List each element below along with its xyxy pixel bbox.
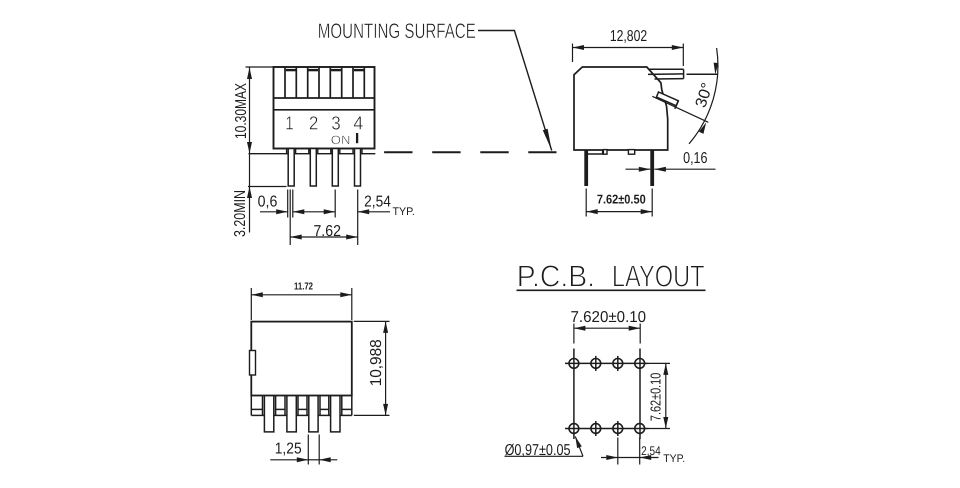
svg-text:MOUNTING SURFACE: MOUNTING SURFACE bbox=[318, 20, 476, 43]
svg-text:30°: 30° bbox=[693, 81, 717, 110]
svg-text:10,988: 10,988 bbox=[368, 339, 385, 386]
svg-text:0,16: 0,16 bbox=[683, 150, 708, 167]
svg-text:2,54: 2,54 bbox=[641, 444, 661, 458]
svg-text:1,25: 1,25 bbox=[275, 440, 302, 457]
svg-text:TYP.: TYP. bbox=[663, 453, 685, 465]
svg-text:11.72: 11.72 bbox=[294, 281, 313, 292]
svg-text:10.30MAX: 10.30MAX bbox=[233, 83, 250, 139]
svg-text:ON: ON bbox=[331, 133, 351, 147]
svg-text:TYP.: TYP. bbox=[393, 206, 415, 218]
svg-text:3: 3 bbox=[331, 114, 341, 135]
svg-text:1: 1 bbox=[285, 114, 294, 135]
svg-text:2,54: 2,54 bbox=[364, 194, 391, 211]
svg-text:7.620±0.10: 7.620±0.10 bbox=[571, 309, 647, 326]
svg-text:3.20MIN: 3.20MIN bbox=[232, 190, 249, 237]
svg-text:P.C.B.: P.C.B. bbox=[517, 260, 595, 294]
svg-text:0,6: 0,6 bbox=[258, 194, 278, 211]
svg-text:12,802: 12,802 bbox=[610, 28, 647, 45]
svg-text:7.62±0.10: 7.62±0.10 bbox=[648, 373, 664, 421]
svg-text:LAYOUT: LAYOUT bbox=[612, 260, 705, 294]
svg-text:7.62±0.50: 7.62±0.50 bbox=[597, 192, 646, 207]
svg-text:7.62: 7.62 bbox=[313, 223, 341, 240]
svg-text:2: 2 bbox=[309, 114, 319, 135]
svg-text:4: 4 bbox=[353, 114, 363, 135]
